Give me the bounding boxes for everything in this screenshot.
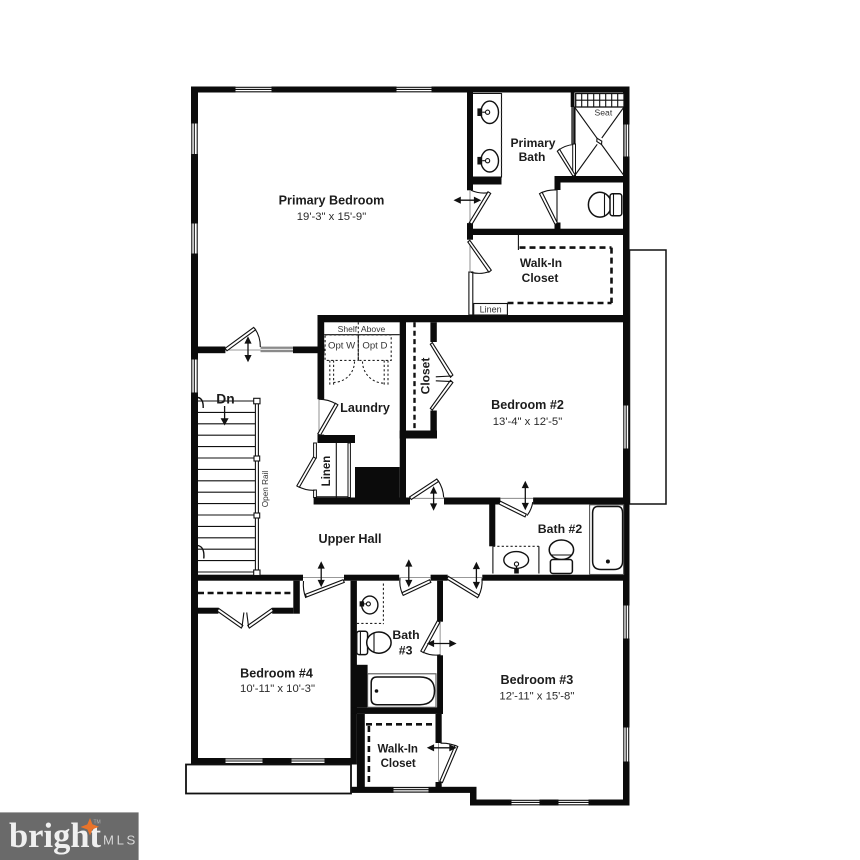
svg-text:Walk-In: Walk-In (377, 744, 417, 756)
svg-text:Shelf: Shelf (338, 324, 358, 334)
svg-text:Upper Hall: Upper Hall (319, 532, 382, 546)
svg-text:Primary: Primary (510, 136, 555, 150)
svg-text:Seat: Seat (595, 108, 613, 118)
svg-text:Linen: Linen (321, 456, 333, 487)
svg-text:Opt D: Opt D (362, 340, 387, 351)
svg-text:Bedroom #4: Bedroom #4 (240, 667, 313, 681)
svg-text:19'-3" x 15'-9": 19'-3" x 15'-9" (297, 211, 366, 223)
svg-text:Primary Bedroom: Primary Bedroom (279, 194, 385, 208)
svg-text:Closet: Closet (522, 271, 559, 285)
svg-text:Laundry: Laundry (340, 401, 390, 415)
svg-text:10'-11" x 10'-3": 10'-11" x 10'-3" (240, 683, 315, 695)
svg-text:Bath #2: Bath #2 (538, 522, 583, 536)
svg-text:#3: #3 (399, 644, 413, 658)
svg-text:Above: Above (361, 324, 386, 334)
svg-text:Walk-In: Walk-In (520, 256, 562, 270)
svg-text:13'-4" x 12'-5": 13'-4" x 12'-5" (493, 416, 562, 428)
svg-text:bright: bright (9, 817, 102, 855)
svg-text:Bath: Bath (519, 150, 546, 164)
svg-text:Bedroom #3: Bedroom #3 (501, 673, 574, 687)
svg-text:Closet: Closet (419, 358, 433, 395)
svg-text:Linen: Linen (480, 305, 502, 315)
svg-text:MLS: MLS (103, 833, 138, 848)
svg-text:TM: TM (94, 820, 101, 826)
svg-text:12'-11" x 15'-8": 12'-11" x 15'-8" (499, 690, 574, 702)
svg-text:Bedroom #2: Bedroom #2 (491, 398, 564, 412)
svg-text:Bath: Bath (392, 628, 419, 642)
svg-text:Dn: Dn (216, 392, 234, 407)
svg-text:Open Rail: Open Rail (261, 471, 270, 508)
svg-text:Closet: Closet (381, 758, 416, 770)
svg-text:Opt W: Opt W (328, 340, 356, 351)
